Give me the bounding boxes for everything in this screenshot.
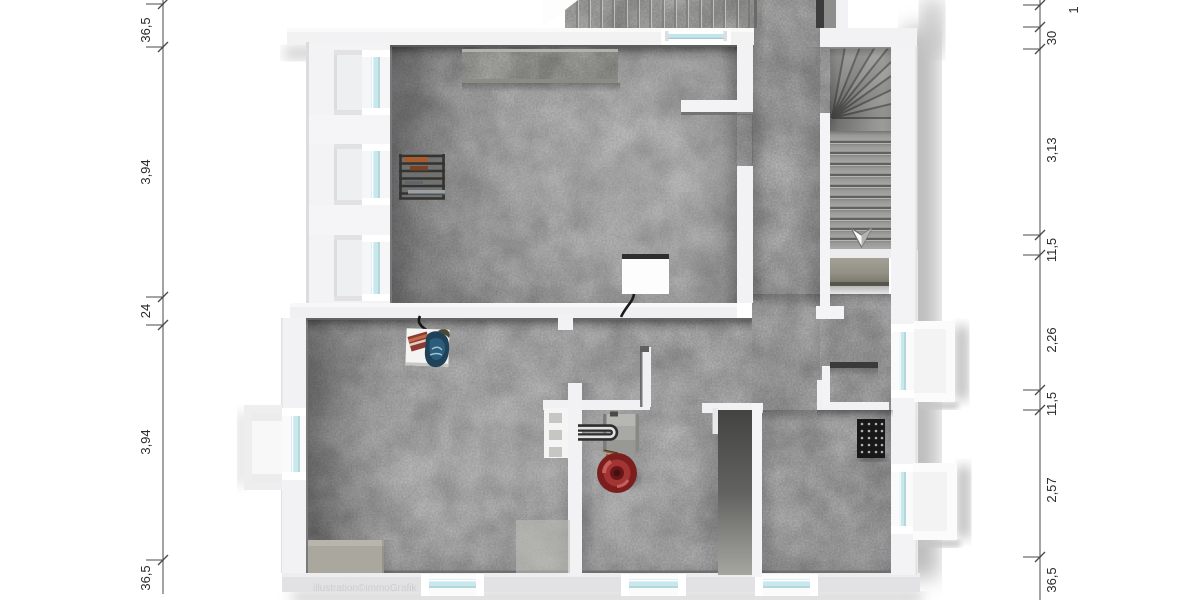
svg-text:24: 24 bbox=[138, 304, 153, 318]
svg-text:11,5: 11,5 bbox=[1044, 238, 1059, 262]
svg-text:1: 1 bbox=[1066, 6, 1081, 13]
svg-text:36,5: 36,5 bbox=[138, 565, 153, 590]
svg-text:2,26: 2,26 bbox=[1044, 327, 1059, 352]
svg-text:3,94: 3,94 bbox=[138, 159, 153, 184]
svg-text:illustration©immoGrafik: illustration©immoGrafik bbox=[313, 583, 418, 594]
svg-text:2,57: 2,57 bbox=[1044, 477, 1059, 502]
svg-text:11,5: 11,5 bbox=[1044, 392, 1059, 416]
svg-text:3,13: 3,13 bbox=[1044, 137, 1059, 162]
svg-text:illustration©immoGrafik: illustration©immoGrafik bbox=[816, 554, 889, 562]
svg-text:3,94: 3,94 bbox=[138, 429, 153, 454]
svg-text:30: 30 bbox=[1044, 31, 1059, 45]
svg-text:36,5: 36,5 bbox=[138, 17, 153, 42]
svg-text:36,5: 36,5 bbox=[1044, 567, 1059, 592]
